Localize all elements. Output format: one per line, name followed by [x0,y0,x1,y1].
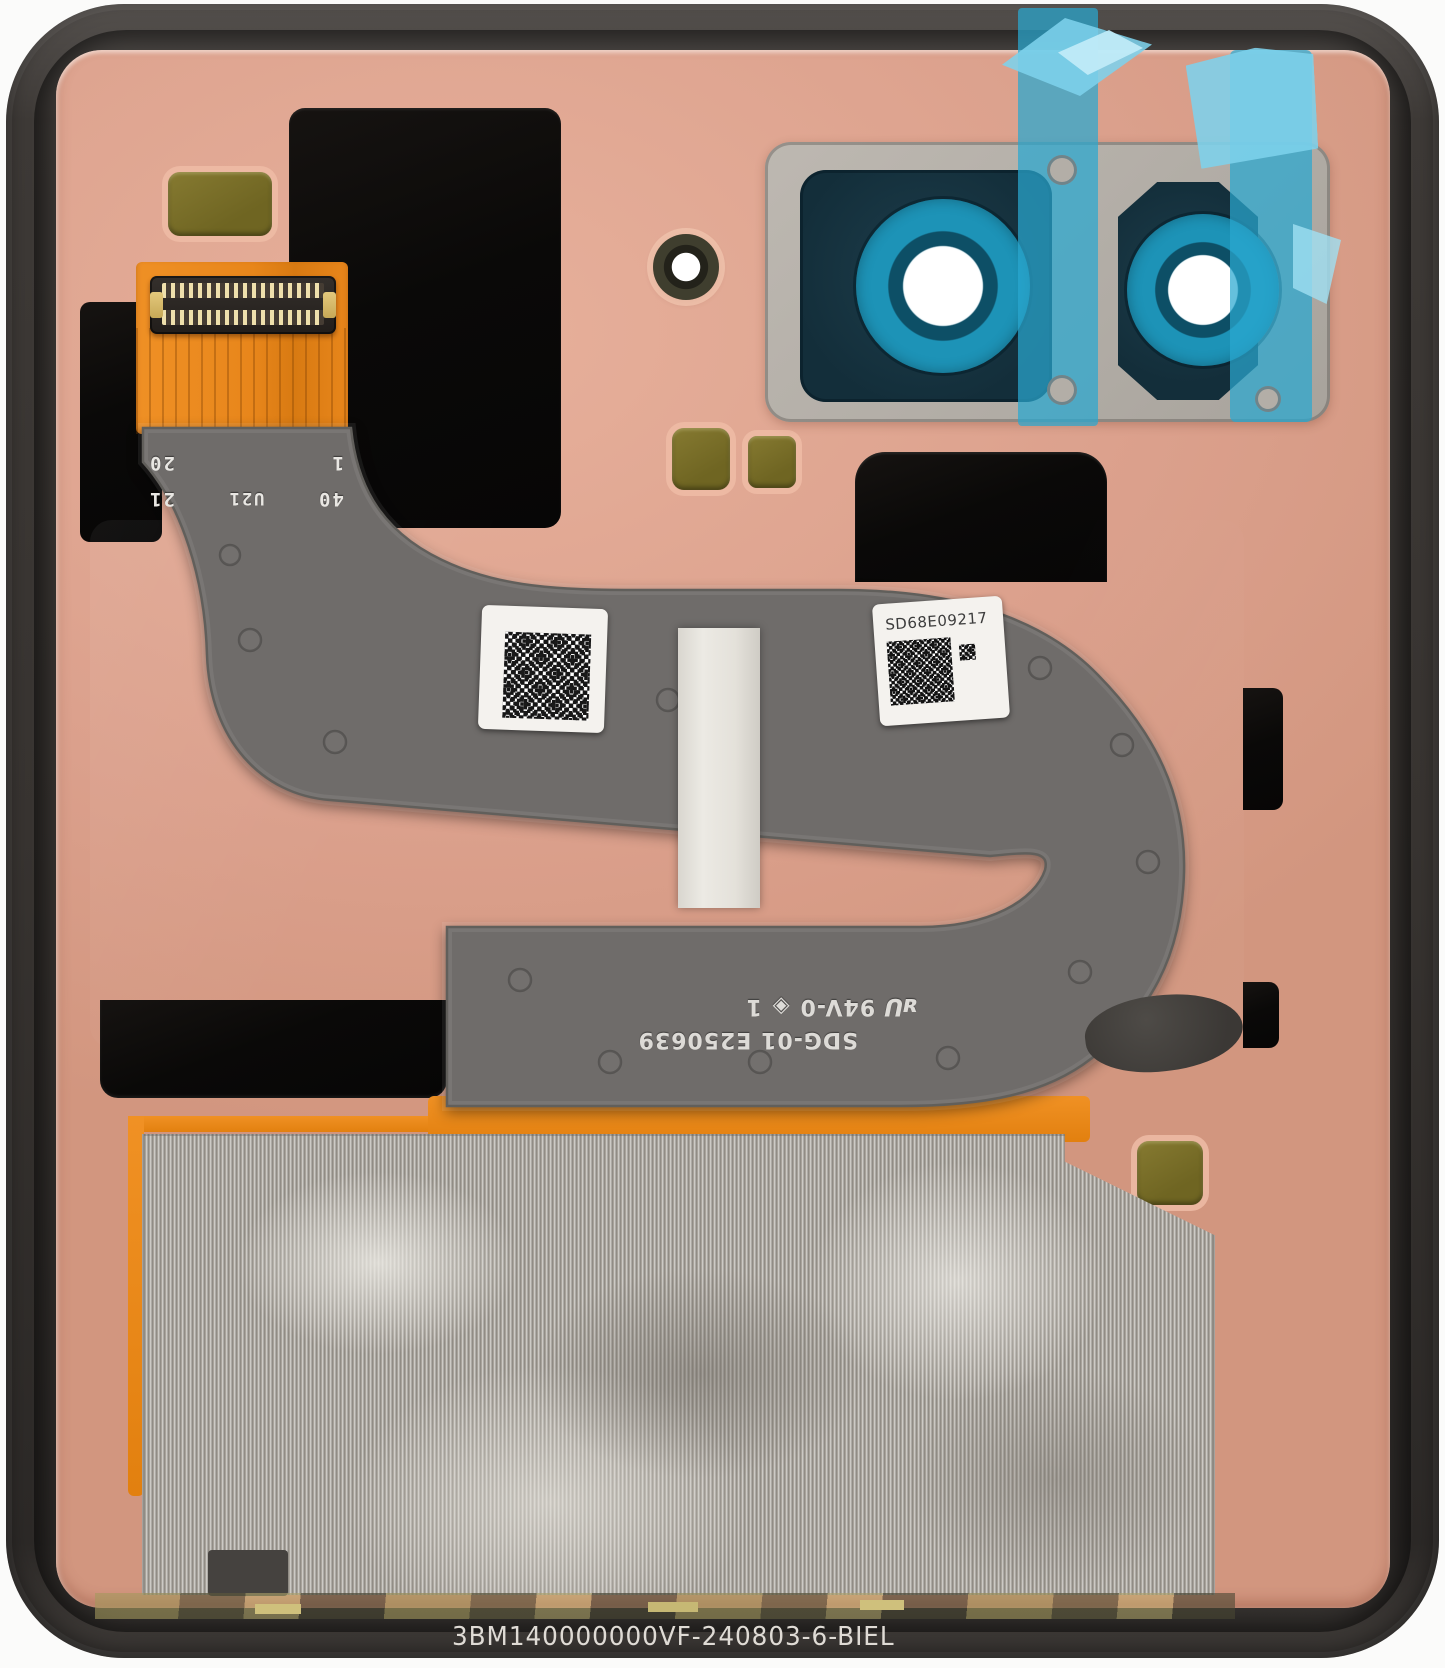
pin-number-21: 21 [148,488,175,510]
pin-number-1: 1 [331,452,344,474]
qr-code [887,637,955,705]
tape-hole-c [1255,386,1281,412]
pin-number-20: 20 [148,452,175,474]
photo-stage: 40 U21 21 1 20 SD68E09217 SDG-01 E250639… [0,0,1445,1668]
tape-hole-a [1047,155,1077,185]
white-tape-strip [678,628,760,908]
tape-hole-b [1047,375,1077,405]
part-number-text: 3BM140000000VF-240803-6-BIEL [452,1622,895,1652]
tape-pull-tab-right [1185,45,1319,170]
connector-pin-marking: 40 U21 21 1 20 [148,448,344,524]
pin-ref-u21: U21 [228,488,265,508]
flex-certification-marking: SDG-01 E250639 ᴚU 94V-0 ◈ 1 [608,966,858,1052]
pin-number-40: 40 [317,488,344,510]
cert-diamond-icon: ◈ [772,995,790,1020]
ul-recognized-mark: ᴚU [885,993,918,1021]
datamatrix-label [478,605,608,733]
flammability-rating: 94V-0 [800,995,875,1020]
flex-part-number: SDG-01 E250639 [608,1027,858,1052]
datamatrix-code [502,632,591,721]
serial-label: SD68E09217 [872,596,1010,727]
qr-mark-small [959,644,976,661]
cert-number: 1 [745,995,761,1020]
